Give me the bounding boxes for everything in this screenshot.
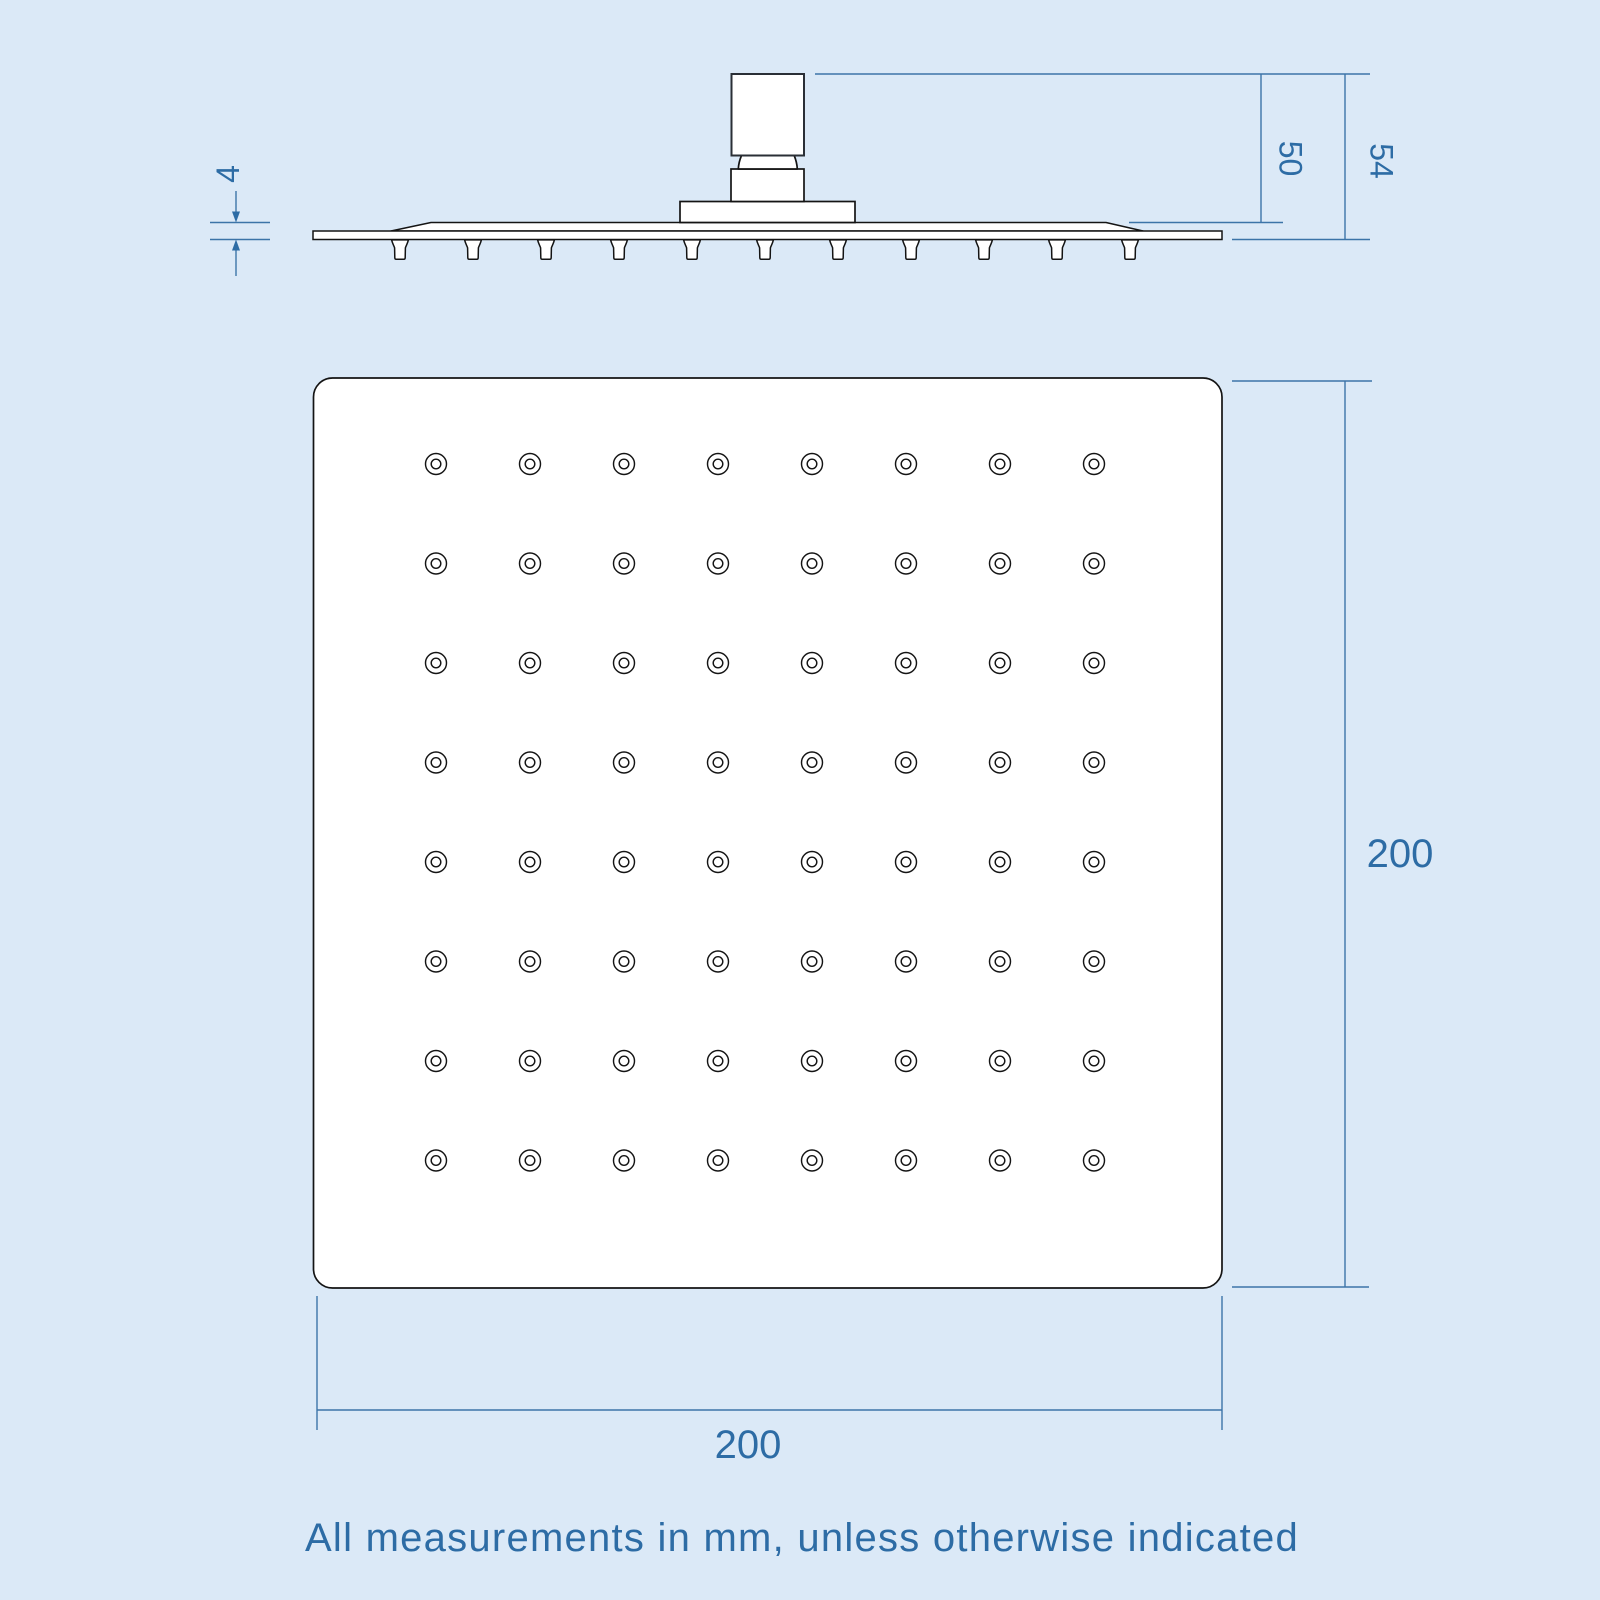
- svg-text:All measurements in mm, unless: All measurements in mm, unless otherwise…: [305, 1516, 1299, 1560]
- svg-text:54: 54: [1364, 143, 1400, 179]
- svg-text:4: 4: [210, 165, 246, 183]
- svg-text:200: 200: [715, 1423, 782, 1467]
- svg-text:200: 200: [1367, 832, 1434, 876]
- svg-text:50: 50: [1273, 141, 1309, 177]
